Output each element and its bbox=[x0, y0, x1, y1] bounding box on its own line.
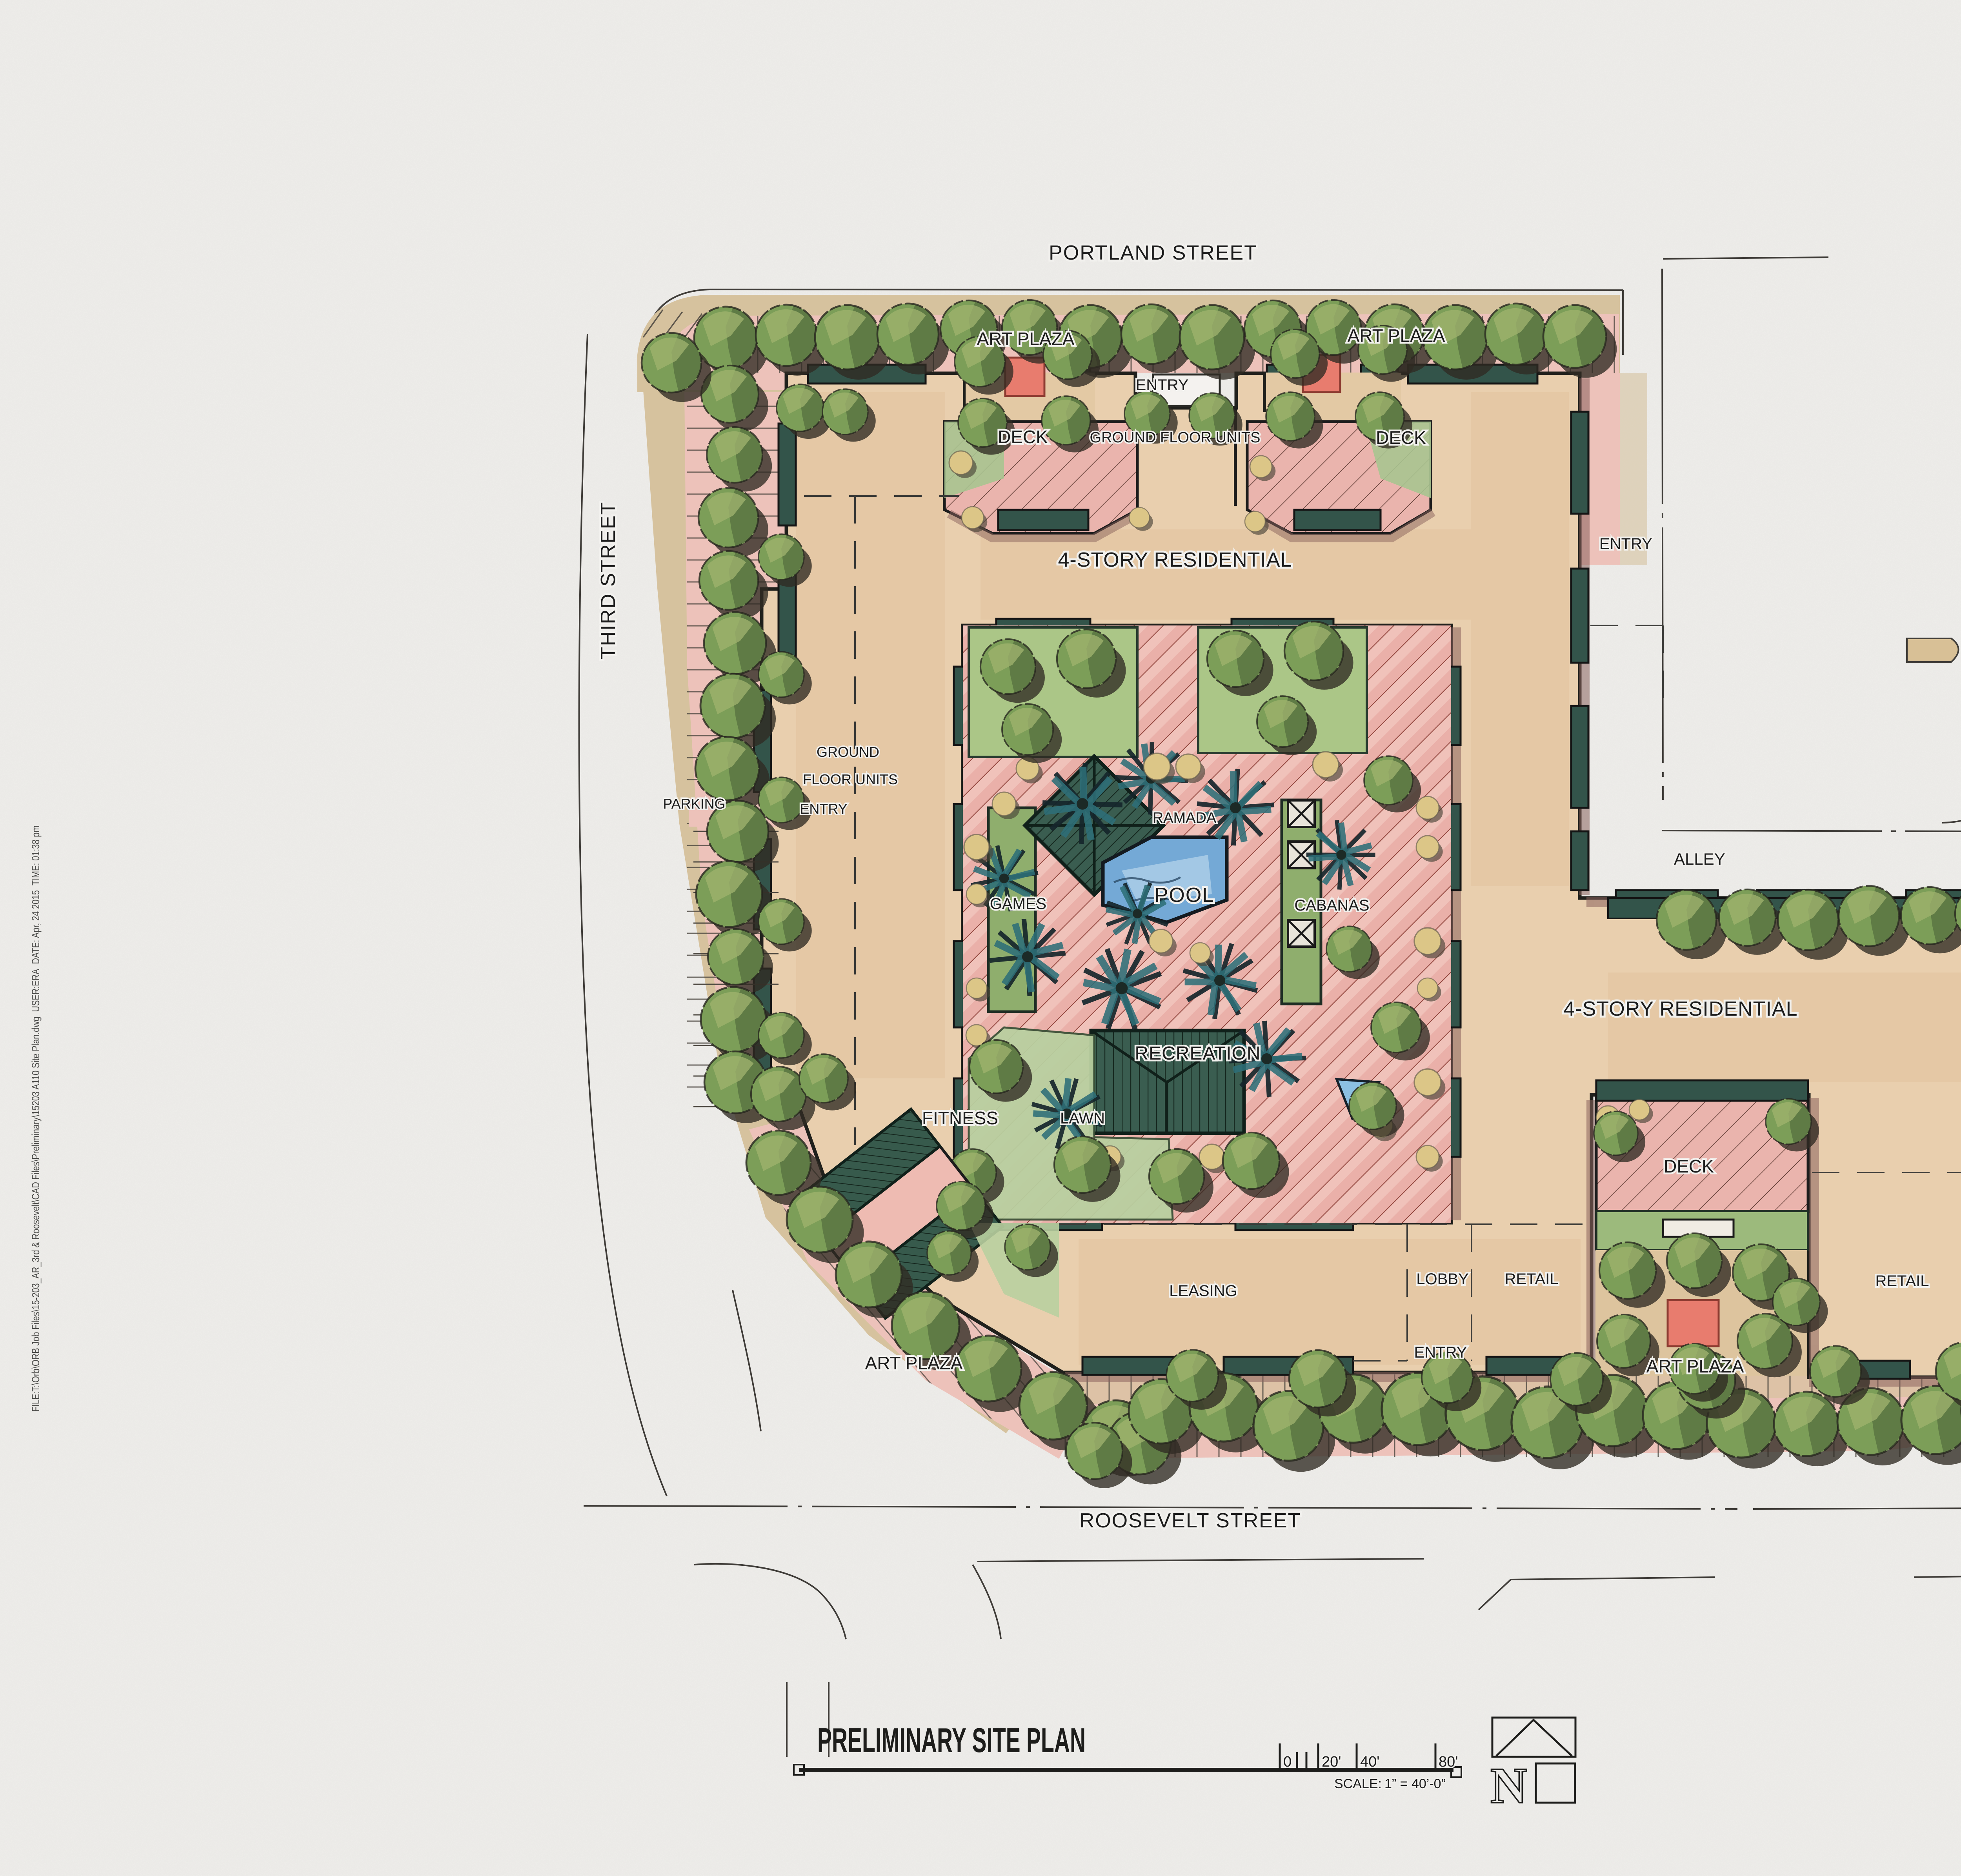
svg-text:POOL: POOL bbox=[1155, 884, 1215, 907]
svg-text:RETAIL: RETAIL bbox=[1875, 1272, 1929, 1290]
svg-text:RETAIL: RETAIL bbox=[1504, 1271, 1558, 1288]
svg-text:PARKING: PARKING bbox=[663, 796, 725, 812]
svg-text:DECK: DECK bbox=[1376, 427, 1426, 448]
svg-text:20': 20' bbox=[1322, 1754, 1341, 1770]
svg-text:ART PLAZA: ART PLAZA bbox=[865, 1353, 963, 1373]
svg-text:0: 0 bbox=[1283, 1754, 1292, 1770]
svg-text:PORTLAND STREET: PORTLAND STREET bbox=[1049, 242, 1257, 264]
svg-text:GROUND: GROUND bbox=[817, 744, 879, 760]
svg-text:LEASING: LEASING bbox=[1169, 1282, 1237, 1300]
svg-text:ALLEY: ALLEY bbox=[1674, 850, 1725, 868]
svg-text:4-STORY RESIDENTIAL: 4-STORY RESIDENTIAL bbox=[1058, 549, 1292, 571]
svg-text:DECK: DECK bbox=[998, 427, 1048, 447]
svg-text:ART PLAZA: ART PLAZA bbox=[1348, 325, 1445, 346]
svg-text:LAWN: LAWN bbox=[1060, 1110, 1105, 1127]
svg-text:PRELIMINARY SITE PLAN: PRELIMINARY SITE PLAN bbox=[817, 1721, 1086, 1760]
svg-text:ENTRY: ENTRY bbox=[1136, 376, 1189, 394]
svg-text:RECREATION: RECREATION bbox=[1135, 1043, 1261, 1064]
svg-text:CABANAS: CABANAS bbox=[1294, 897, 1369, 914]
svg-text:ENTRY: ENTRY bbox=[1599, 535, 1652, 553]
svg-text:FLOOR UNITS: FLOOR UNITS bbox=[803, 771, 898, 787]
svg-text:1” = 40’-0”: 1” = 40’-0” bbox=[1384, 1776, 1446, 1791]
svg-text:80': 80' bbox=[1439, 1754, 1458, 1770]
svg-text:ENTRY: ENTRY bbox=[800, 801, 847, 817]
svg-text:ROOSEVELT STREET: ROOSEVELT STREET bbox=[1080, 1509, 1301, 1532]
svg-text:ENTRY: ENTRY bbox=[1414, 1344, 1467, 1361]
svg-text:DECK: DECK bbox=[1664, 1156, 1714, 1176]
svg-text:GROUND FLOOR UNITS: GROUND FLOOR UNITS bbox=[1090, 429, 1261, 446]
svg-text:FITNESS: FITNESS bbox=[922, 1108, 998, 1128]
svg-text:RAMADA: RAMADA bbox=[1153, 810, 1217, 826]
svg-text:SCALE:: SCALE: bbox=[1334, 1776, 1382, 1791]
svg-text:LOBBY: LOBBY bbox=[1416, 1271, 1468, 1288]
svg-text:GAMES: GAMES bbox=[990, 895, 1046, 913]
svg-text:40': 40' bbox=[1360, 1754, 1380, 1770]
svg-text:ART PLAZA: ART PLAZA bbox=[977, 329, 1075, 349]
svg-text:THIRD STREET: THIRD STREET bbox=[597, 502, 620, 659]
svg-text:N: N bbox=[1490, 1758, 1527, 1814]
svg-text:4-STORY RESIDENTIAL: 4-STORY RESIDENTIAL bbox=[1564, 998, 1798, 1020]
svg-text:FILE:T:\Orb\ORB Job Files\15-2: FILE:T:\Orb\ORB Job Files\15-203_AR_3rd … bbox=[30, 825, 42, 1412]
svg-text:ART PLAZA: ART PLAZA bbox=[1646, 1356, 1744, 1376]
